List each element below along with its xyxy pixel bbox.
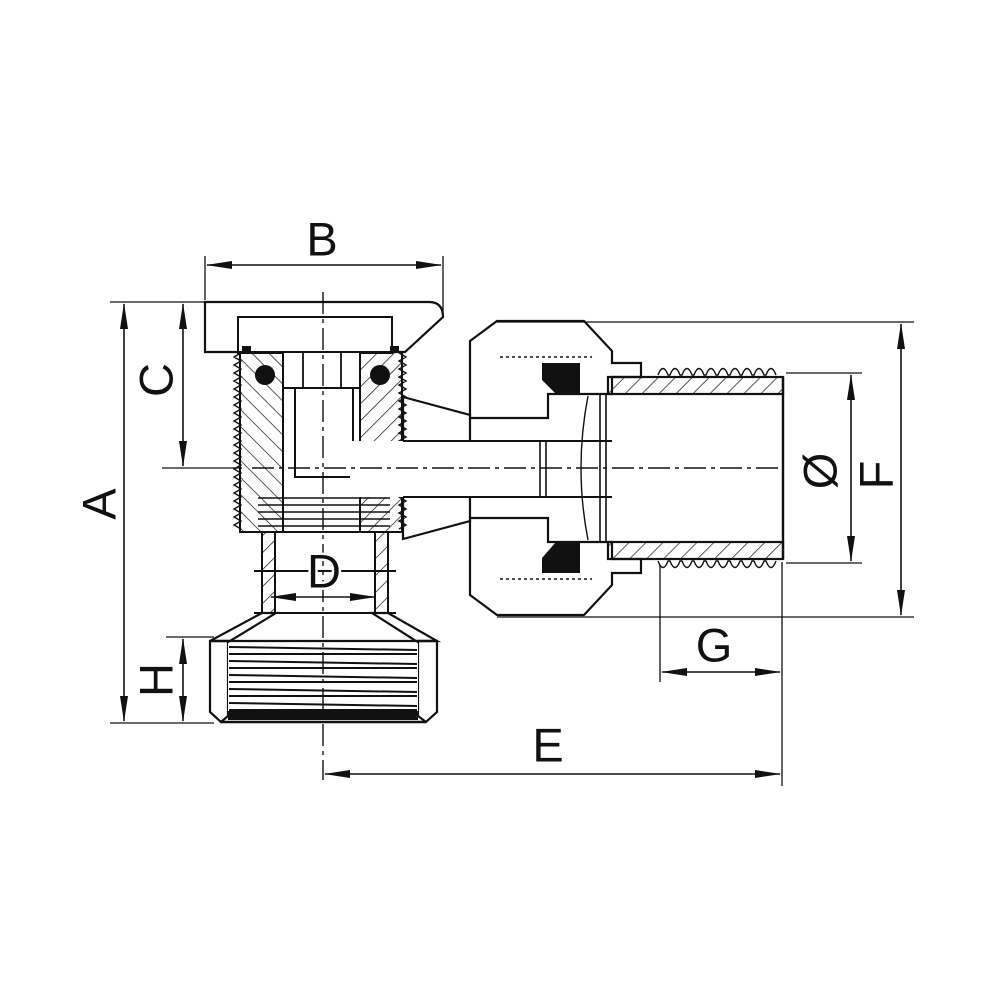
o-ring-left bbox=[255, 365, 275, 385]
dim-label-d: D bbox=[307, 545, 341, 598]
o-ring-right bbox=[370, 365, 390, 385]
valve-section-drawing: A B C D E F G H Ø bbox=[0, 0, 1000, 1000]
seal-top bbox=[542, 363, 580, 394]
dim-label-f: F bbox=[850, 461, 903, 490]
drawing-canvas: A B C D E F G H Ø bbox=[0, 0, 1000, 1000]
pipe-thread-top bbox=[658, 369, 776, 376]
top-flange bbox=[205, 302, 443, 353]
pipe-thread-bottom bbox=[658, 561, 776, 568]
flow-bore bbox=[350, 441, 612, 497]
dim-label-h: H bbox=[130, 663, 183, 697]
dim-label-g: G bbox=[696, 619, 733, 672]
dim-label-diameter: Ø bbox=[794, 453, 847, 490]
dim-label-b: B bbox=[306, 213, 337, 266]
dim-label-c: C bbox=[130, 363, 183, 397]
dim-label-e: E bbox=[532, 719, 563, 772]
dim-label-a: A bbox=[73, 488, 126, 520]
seal-bottom bbox=[542, 542, 580, 573]
